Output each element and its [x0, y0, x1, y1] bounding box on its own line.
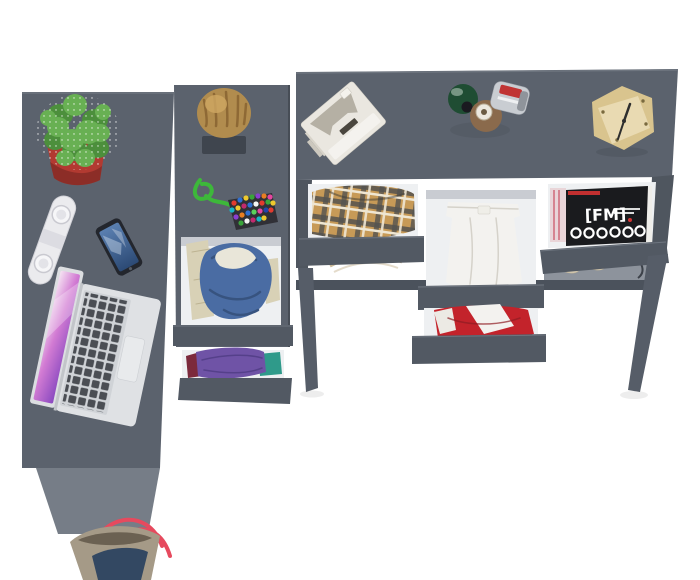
bead	[235, 205, 240, 210]
middle-cabinet	[173, 85, 293, 404]
bead	[238, 220, 243, 225]
magazine-cover: [FM]	[566, 186, 648, 246]
purple-sweater	[196, 348, 266, 379]
drawer-red	[412, 304, 546, 364]
bead	[231, 200, 236, 205]
drawer-plaid-front	[299, 236, 424, 266]
drawer-plaid	[299, 184, 424, 266]
bead	[247, 202, 252, 207]
bead	[233, 214, 238, 219]
magazine-title: [FM]	[584, 205, 626, 225]
drawer-denim-front	[173, 325, 293, 346]
bead	[237, 197, 242, 202]
bag-front-panel	[92, 548, 148, 580]
belt-tab	[478, 206, 490, 214]
drawer-red-front	[412, 334, 546, 364]
scene: [FM]	[0, 0, 700, 580]
bead	[270, 200, 275, 205]
plaid-shirt	[312, 185, 415, 238]
white-trousers	[446, 202, 522, 290]
cactus-spines	[36, 94, 120, 170]
product-image: [FM]	[0, 0, 700, 580]
bead	[241, 203, 246, 208]
bead	[245, 210, 250, 215]
bead	[244, 218, 249, 223]
bead	[249, 194, 254, 199]
drawer-trousers	[418, 190, 544, 310]
drawer-denim	[173, 237, 293, 346]
log-shelf	[202, 136, 246, 154]
bead	[261, 215, 266, 220]
cactus-foliage	[36, 94, 120, 170]
bead	[257, 208, 262, 213]
log-top-face	[205, 95, 227, 113]
wood-log	[197, 88, 251, 138]
bead	[255, 193, 260, 198]
drawer-clothes	[178, 348, 292, 405]
bead	[267, 194, 272, 199]
bead	[265, 199, 270, 204]
bead	[256, 216, 261, 221]
magazine-topstrip	[568, 191, 600, 195]
bead	[250, 217, 255, 222]
bead	[229, 207, 234, 212]
cabinet-side-shade	[288, 85, 290, 347]
bead	[259, 200, 264, 205]
bead	[261, 193, 266, 198]
bead	[268, 207, 273, 212]
drawer-clothes-front	[178, 378, 292, 404]
magazine-red-dot	[628, 218, 632, 222]
bead	[239, 212, 244, 217]
bead	[253, 201, 258, 206]
bead	[251, 209, 256, 214]
bead	[263, 207, 268, 212]
bead	[243, 195, 248, 200]
